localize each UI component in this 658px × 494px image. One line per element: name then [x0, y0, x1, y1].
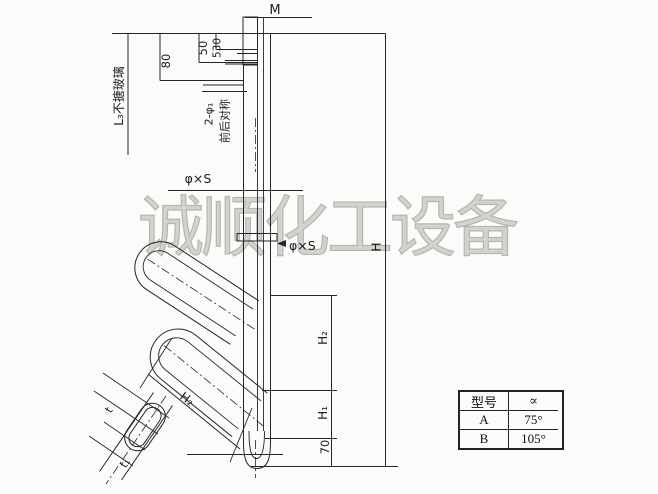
- spec-table: 型号 ∝ A 75° B 105°: [458, 390, 564, 450]
- branch-h2-dimension: [140, 338, 252, 462]
- table-cell-model-a: A: [460, 411, 509, 430]
- wall-section-hatch: [243, 17, 258, 65]
- label-h2-right: H₂: [316, 331, 330, 345]
- top-dimension-lines: [112, 18, 386, 156]
- pipe-bottom-cap: [244, 442, 271, 469]
- sight-glass-pipe: [89, 373, 173, 484]
- main-pipe: [243, 17, 271, 478]
- label-h1-right: H₁: [316, 406, 330, 420]
- mid-flange: [168, 191, 303, 248]
- upper-branch-nozzle: [125, 232, 272, 353]
- label-h-total: H: [369, 242, 384, 251]
- label-dim-t: t: [102, 404, 116, 415]
- table-cell-angle-b: 105°: [509, 430, 558, 448]
- label-dim-530: 530: [212, 38, 224, 58]
- label-holes: 2-φ₁: [203, 103, 216, 126]
- phi-s-arrowhead: [277, 240, 286, 247]
- label-symmetry: 前后对称: [218, 99, 232, 143]
- label-glass-note: L₃不搪玻璃: [111, 66, 126, 126]
- label-phi-s-flange: φ×S: [289, 238, 316, 253]
- label-dim-80: 80: [159, 54, 173, 69]
- table-cell-model-b: B: [460, 430, 509, 448]
- label-m: M: [269, 3, 280, 18]
- table-header-model: 型号: [460, 392, 509, 411]
- label-dim-50: 50: [196, 41, 210, 56]
- table-cell-angle-a: 75°: [509, 411, 558, 430]
- table-header-angle: ∝: [509, 392, 558, 411]
- label-dim-t1: t₁: [117, 456, 133, 471]
- label-phi-s-upper: φ×S: [185, 171, 212, 186]
- engineering-drawing-page: 诚顺化工设备: [0, 0, 658, 494]
- label-dim-70: 70: [318, 440, 332, 455]
